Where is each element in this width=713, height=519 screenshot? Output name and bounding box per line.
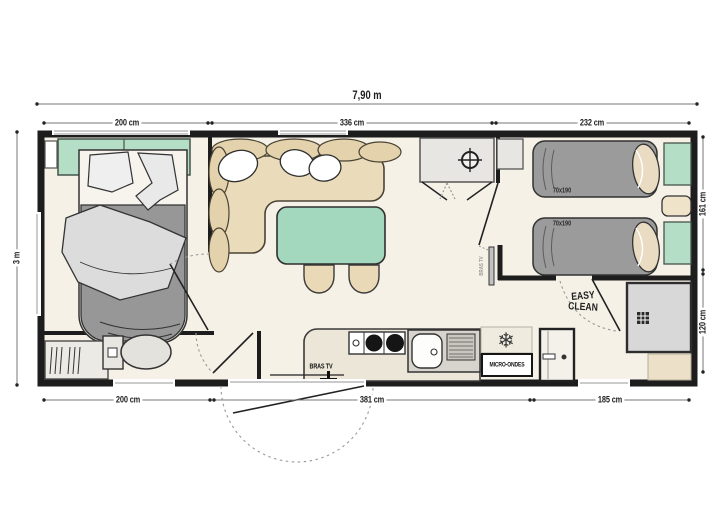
- nightstand: [662, 196, 691, 216]
- dim-bottom-3: 185 cm: [596, 395, 625, 406]
- tv-bracket-bedroom-label: BRAS TV: [479, 256, 485, 275]
- dim-right-1: 161 cm: [698, 190, 709, 219]
- handle-icon: [562, 355, 567, 360]
- dim-bottom-1: 200 cm: [114, 395, 143, 406]
- burner-icon: [366, 335, 383, 352]
- bath-mat: [648, 354, 691, 380]
- easy-clean-logo-line2: CLEAN: [568, 300, 598, 314]
- dim-overall-width: 7,90 m: [349, 88, 384, 102]
- microwave-label: MICRO-ONDES: [490, 362, 525, 369]
- headboard: [664, 222, 691, 264]
- burner-icon: [386, 334, 404, 352]
- shelf-item: [45, 141, 57, 168]
- toilet: [103, 335, 171, 369]
- dining-table: [277, 207, 385, 264]
- dim-top-1: 200 cm: [113, 118, 142, 129]
- tv-bar: [489, 247, 494, 285]
- dim-overall-depth: 3 m: [12, 250, 23, 267]
- floor-plan: 7,90 m 200 cm 336 cm 232 cm 200 cm 381 c…: [0, 0, 713, 519]
- master-bed: [62, 150, 187, 343]
- headboard: [664, 143, 691, 185]
- dim-bottom-2: 381 cm: [358, 395, 387, 406]
- pillow: [88, 152, 133, 192]
- dim-top-3: 232 cm: [578, 118, 607, 129]
- floor-plan-drawing: [0, 0, 713, 519]
- sink: [408, 330, 480, 372]
- entrance-door: [221, 379, 373, 462]
- bed1-size-label: 70x190: [553, 188, 571, 195]
- dim-right-2: 120 cm: [698, 308, 709, 337]
- tall-cabinet: [540, 329, 574, 381]
- bed2-size-label: 70x190: [553, 221, 571, 228]
- window-bottom-wc: [113, 379, 175, 387]
- tv-bracket-kitchen-label: BRAS TV: [310, 364, 333, 371]
- shower-drain-icon: [637, 312, 649, 324]
- dim-top-2: 336 cm: [338, 118, 367, 129]
- towel-rack: [45, 341, 108, 379]
- hob: [349, 332, 405, 354]
- snowflake-icon: ❄: [497, 329, 515, 354]
- window-left-master: [33, 212, 41, 316]
- window-bottom-bathroom: [578, 379, 630, 387]
- drain-icon: [431, 349, 437, 355]
